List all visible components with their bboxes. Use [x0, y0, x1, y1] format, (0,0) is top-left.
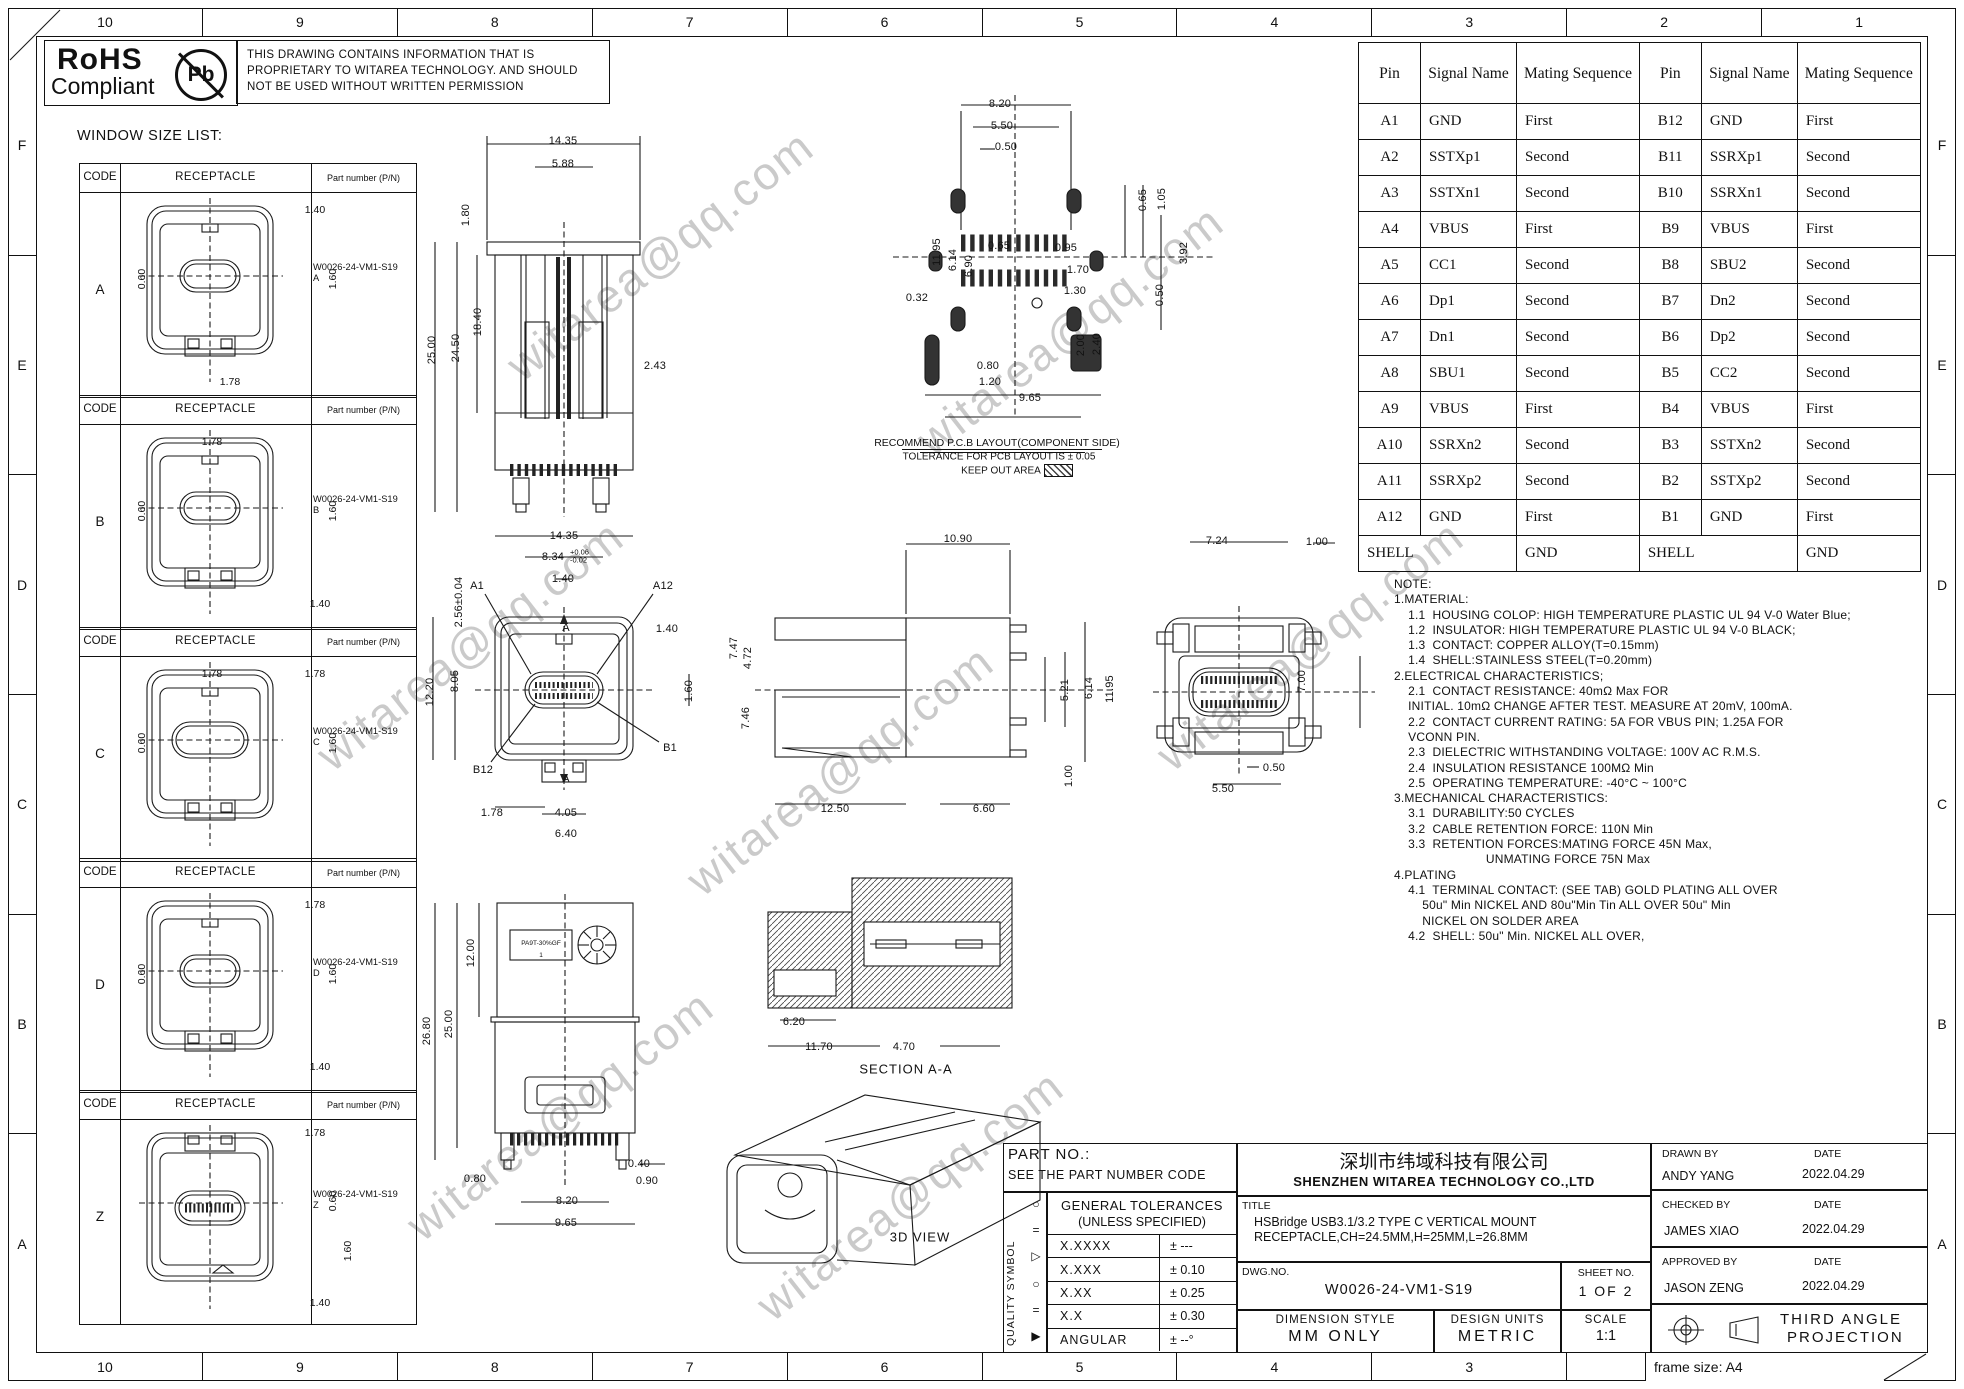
dim-label: 1.40 [310, 1297, 330, 1309]
drawing-title-line1: HSBridge USB3.1/3.2 TYPE C VERTICAL MOUN… [1238, 1212, 1650, 1229]
quality-symbol-icon: ▷ [1026, 1249, 1046, 1263]
pin-row: B11 SSRXp1 Second [1639, 140, 1920, 176]
shell-value: GND [1797, 536, 1920, 572]
approved-date-value: 2022.04.29 [1802, 1279, 1865, 1293]
pin-callout-a1: A1 [470, 580, 484, 592]
mating-sequence: Second [1517, 140, 1640, 176]
projection-box: THIRD ANGLE PROJECTION [1651, 1304, 1928, 1353]
signal-name: GND [1421, 104, 1517, 140]
pin-id: B10 [1639, 176, 1701, 212]
mating-sequence: Second [1797, 140, 1920, 176]
grid-row-label: A [8, 1134, 36, 1353]
pin-row: A8 SBU1 Second [1359, 356, 1640, 392]
grid-col-label: 8 [398, 1353, 593, 1381]
design-units-value: METRIC [1435, 1326, 1560, 1346]
dim-label: 6.90 [963, 255, 975, 277]
dim-label: 6.14 [1083, 677, 1095, 699]
dim-label: 2.00 [1075, 334, 1087, 356]
col-header-signal: Signal Name [1701, 43, 1797, 104]
grid-col-label: 9 [203, 8, 398, 36]
dim-label: 1.00 [1306, 536, 1328, 548]
approved-by-value: JASON ZENG [1664, 1281, 1744, 1295]
dim-label: 24.50 [450, 334, 462, 363]
pin-assignment-table: Pin Signal Name Mating Sequence A1 GND F… [1358, 42, 1921, 572]
grid-col-label: 9 [203, 1353, 398, 1381]
dim-label: 0.60 [327, 1191, 339, 1211]
code-letter: B [80, 514, 120, 529]
grid-col-label: 1 [1762, 8, 1956, 36]
note-line: 4.2 SHELL: 50u" Min. NICKEL ALL OVER, [1394, 929, 1934, 944]
company-name-cn: 深圳市纬域科技有限公司 [1238, 1144, 1650, 1174]
pin-id: B12 [1639, 104, 1701, 140]
mating-sequence: First [1517, 104, 1640, 140]
approved-by-box: APPROVED BY DATE JASON ZENG 2022.04.29 [1651, 1247, 1928, 1304]
title-box: TITLE HSBridge USB3.1/3.2 TYPE C VERTICA… [1237, 1196, 1651, 1262]
dim-label: 8.34 [542, 551, 564, 563]
tolerance-row: ANGULAR ± --° [1048, 1328, 1236, 1351]
mating-sequence: Second [1797, 464, 1920, 500]
dim-label: 0.65 [988, 240, 1010, 252]
dim-label: 3.92 [1178, 242, 1190, 264]
signal-name: VBUS [1421, 392, 1517, 428]
note-line: UNMATING FORCE 75N Max [1394, 852, 1934, 867]
engineering-drawing-sheet: witarea@qq.com witarea@qq.com witarea@qq… [0, 0, 1964, 1389]
grid-row-label: B [1928, 915, 1956, 1135]
dim-label: 0.95 [1055, 242, 1077, 254]
pin-table-b-side: Pin Signal Name Mating Sequence B12 GND … [1639, 42, 1921, 572]
signal-name: SSTXp2 [1701, 464, 1797, 500]
grid-col-label: 7 [593, 8, 788, 36]
dim-label: 6.40 [555, 828, 577, 840]
receptacle-drawing [127, 887, 303, 1083]
note-line: 1.4 SHELL:STAINLESS STEEL(T=0.20mm) [1394, 653, 1934, 668]
design-units-box: DESIGN UNITS METRIC [1434, 1310, 1561, 1353]
tolerance-precision: X.XXXX [1048, 1239, 1159, 1253]
rohs-compliant-label: Compliant [51, 73, 155, 100]
tolerance-value: ± --- [1159, 1235, 1236, 1257]
signal-name: Dn1 [1421, 320, 1517, 356]
note-line: 3.1 DURABILITY:50 CYCLES [1394, 806, 1934, 821]
pin-row: A12 GND First [1359, 500, 1640, 536]
pin-id: A4 [1359, 212, 1421, 248]
mating-sequence: Second [1517, 176, 1640, 212]
dim-label: 14.35 [550, 530, 579, 542]
pin-row: A1 GND First [1359, 104, 1640, 140]
code-letter: D [80, 977, 120, 992]
front-view-drawing [425, 122, 685, 532]
code-letter: C [80, 746, 120, 761]
note-line: 4.PLATING [1394, 868, 1934, 883]
note-line: 2.3 DIELECTRIC WITHSTANDING VOLTAGE: 100… [1394, 745, 1934, 760]
dim-label: 1.78 [305, 899, 325, 911]
signal-name: GND [1701, 104, 1797, 140]
shell-value: GND [1517, 536, 1640, 572]
note-line: 3.2 CABLE RETENTION FORCE: 110N Min [1394, 822, 1934, 837]
pin-id: A9 [1359, 392, 1421, 428]
pin-id: A7 [1359, 320, 1421, 356]
proprietary-line: NOT BE USED WITHOUT WRITTEN PERMISSION [247, 79, 609, 95]
dimension-style-label: DIMENSION STYLE [1238, 1311, 1433, 1326]
mating-sequence: Second [1797, 176, 1920, 212]
note-line: 1.2 INSULATOR: HIGH TEMPERATURE PLASTIC … [1394, 623, 1934, 638]
pin-row: A5 CC1 Second [1359, 248, 1640, 284]
dim-label: 4.05 [555, 807, 577, 819]
code-letter: Z [80, 1209, 120, 1224]
grid-row-label: F [8, 36, 36, 256]
dim-label: 25.00 [426, 336, 438, 365]
dim-label: 1.30 [1064, 285, 1086, 297]
dim-label: 0.80 [464, 1173, 486, 1185]
dim-label: 1.78 [202, 668, 222, 680]
dim-label: 12.20 [424, 678, 436, 707]
dim-label: 7.46 [740, 707, 752, 729]
dim-label: 0.80 [977, 360, 999, 372]
pin-id: A6 [1359, 284, 1421, 320]
pin-id: B4 [1639, 392, 1701, 428]
dim-label: 1.78 [220, 376, 240, 388]
cavity-number: 1 [539, 952, 543, 960]
pin-row: A7 Dn1 Second [1359, 320, 1640, 356]
dim-label: 2.43 [644, 360, 666, 372]
signal-name: CC2 [1701, 356, 1797, 392]
mating-sequence: Second [1517, 464, 1640, 500]
scale-value: 1:1 [1562, 1326, 1650, 1344]
signal-name: SSTXn2 [1701, 428, 1797, 464]
3d-view-label: 3D VIEW [890, 1230, 950, 1245]
dwg-no-box: DWG.NO. W0026-24-VM1-S19 [1237, 1262, 1561, 1310]
dim-label: 1.60 [327, 269, 339, 289]
grid-col-label: 6 [788, 1353, 983, 1381]
dim-label: 1.78 [202, 436, 222, 448]
signal-name: VBUS [1701, 392, 1797, 428]
note-line: 50u" Min NICKEL AND 80u"Min Tin ALL OVER… [1394, 898, 1934, 913]
dim-label: 1.40 [656, 623, 678, 635]
pin-id: A2 [1359, 140, 1421, 176]
note-line: 2.2 CONTACT CURRENT RATING: 5A FOR VBUS … [1394, 715, 1934, 730]
signal-name: SBU2 [1701, 248, 1797, 284]
company-name-en: SHENZHEN WITAREA TECHNOLOGY CO.,LTD [1238, 1174, 1650, 1189]
checked-date-value: 2022.04.29 [1802, 1222, 1865, 1236]
pin-id: B11 [1639, 140, 1701, 176]
pin-row: A10 SSRXn2 Second [1359, 428, 1640, 464]
signal-name: Dn2 [1701, 284, 1797, 320]
col-header-signal: Signal Name [1421, 43, 1517, 104]
receptacle-drawing [127, 656, 303, 852]
signal-name: VBUS [1701, 212, 1797, 248]
tolerance-precision: X.XX [1048, 1286, 1159, 1300]
tolerance-value: ± --° [1159, 1329, 1236, 1351]
projection-label-line1: THIRD ANGLE [1780, 1311, 1902, 1328]
dim-label: 5.21 [1059, 679, 1071, 701]
dim-label: 7.00 [1296, 670, 1308, 692]
pin-id: B8 [1639, 248, 1701, 284]
dim-label: 1.05 [1156, 188, 1168, 210]
note-line: NOTE: [1394, 577, 1934, 592]
col-header-pin: Pin [1639, 43, 1701, 104]
part-no-label: PART NO.: [1004, 1144, 1236, 1163]
pin-row: A4 VBUS First [1359, 212, 1640, 248]
dim-label: 1.20 [979, 376, 1001, 388]
window-table-header: CODE RECEPTACLE Part number (P/N) [80, 396, 416, 425]
grid-col-label: 5 [983, 8, 1178, 36]
note-line: INITIAL. 10mΩ CHANGE AFTER TEST. MEASURE… [1394, 699, 1934, 714]
grid-col-label: 8 [398, 8, 593, 36]
pin-row: B7 Dn2 Second [1639, 284, 1920, 320]
pin-row: A6 Dp1 Second [1359, 284, 1640, 320]
tolerance-row: X.X ± 0.30 [1048, 1304, 1236, 1327]
checked-by-box: CHECKED BY DATE JAMES XIAO 2022.04.29 [1651, 1190, 1928, 1247]
mating-sequence: First [1797, 500, 1920, 536]
dim-label: 12.00 [465, 939, 477, 968]
dim-label: 4.72 [742, 647, 754, 669]
tolerance-row: X.XXX ± 0.10 [1048, 1257, 1236, 1280]
dim-label: 1.00 [1063, 765, 1075, 787]
pin-id: A3 [1359, 176, 1421, 212]
part-no-box: PART NO.: SEE THE PART NUMBER CODE [1003, 1143, 1237, 1192]
grid-col-label: 2 [1567, 8, 1762, 36]
title-block: PART NO.: SEE THE PART NUMBER CODE QUALI… [1003, 1143, 1928, 1353]
dim-label: 5.88 [552, 158, 574, 170]
keep-out-area-caption: KEEP OUT AREA [961, 466, 1041, 477]
dim-label: 12.50 [821, 803, 850, 815]
pin-row: B4 VBUS First [1639, 392, 1920, 428]
dim-label: 6.14 [947, 249, 959, 271]
tolerances-box: GENERAL TOLERANCES (UNLESS SPECIFIED) X.… [1047, 1192, 1237, 1353]
grid-row-label: B [8, 915, 36, 1135]
pin-id: B7 [1639, 284, 1701, 320]
grid-band-top: 10987654321 [8, 8, 1956, 36]
rohs-compliant-box: RoHS Compliant Pb [44, 40, 238, 106]
signal-name: SSTXp1 [1421, 140, 1517, 176]
dim-label: 0.40 [628, 1158, 650, 1170]
dim-label: 0.50 [995, 141, 1017, 153]
grid-col-label: 3 [1372, 8, 1567, 36]
pin-row: B5 CC2 Second [1639, 356, 1920, 392]
shell-label: SHELL [1359, 536, 1517, 572]
plan-view-drawing [425, 522, 755, 852]
dim-label: 18.40 [472, 308, 484, 337]
dim-label: 0.65 [1137, 189, 1149, 211]
drawing-title-line2: RECEPTACLE,CH=24.5MM,H=25MM,L=26.8MM [1238, 1229, 1650, 1244]
drawn-by-value: ANDY YANG [1662, 1169, 1734, 1183]
mating-sequence: Second [1797, 428, 1920, 464]
quality-symbol-icon: = [1026, 1223, 1046, 1237]
sheet-no-box: SHEET NO. 1 OF 2 [1561, 1262, 1651, 1310]
scale-box: SCALE 1:1 [1561, 1310, 1651, 1353]
dim-label: 1.78 [305, 1127, 325, 1139]
receptacle-drawing [127, 424, 303, 620]
mating-sequence: Second [1517, 428, 1640, 464]
dwg-no-value: W0026-24-VM1-S19 [1238, 1278, 1560, 1298]
note-line: 4.1 TERMINAL CONTACT: (SEE TAB) GOLD PLA… [1394, 883, 1934, 898]
mating-sequence: Second [1517, 248, 1640, 284]
grid-col-label: 6 [788, 8, 983, 36]
dim-label: 1.78 [481, 807, 503, 819]
signal-name: VBUS [1421, 212, 1517, 248]
mating-sequence: Second [1517, 356, 1640, 392]
dim-label: 5.50 [1212, 783, 1234, 795]
pin-row: B10 SSRXn1 Second [1639, 176, 1920, 212]
pcb-layout-drawing [885, 85, 1220, 485]
note-line: 3.MECHANICAL CHARACTERISTICS: [1394, 791, 1934, 806]
grid-row-label: A [1928, 1134, 1956, 1353]
receptacle-drawing [127, 1119, 303, 1315]
signal-name: SSTXn1 [1421, 176, 1517, 212]
dim-label: 0.60 [136, 733, 148, 753]
window-table-header: CODE RECEPTACLE Part number (P/N) [80, 859, 416, 888]
sheet-no-label: SHEET NO. [1562, 1263, 1650, 1279]
pin-row: A11 SSRXp2 Second [1359, 464, 1640, 500]
window-size-row-a: CODE RECEPTACLE Part number (P/N) A W002… [79, 163, 417, 398]
section-mark: A [562, 622, 570, 634]
signal-name: SSRXn2 [1421, 428, 1517, 464]
dim-label: 0.50 [1154, 284, 1166, 306]
grid-col-label: 7 [593, 1353, 788, 1381]
pin-callout-b1: B1 [663, 742, 677, 754]
tolerance-stack: +0.06-0.02 [570, 549, 589, 564]
pin-row: A9 VBUS First [1359, 392, 1640, 428]
window-size-row-c: CODE RECEPTACLE Part number (P/N) C W002… [79, 627, 417, 862]
grid-band-left: FEDCBA [8, 36, 36, 1353]
grid-row-label: C [8, 695, 36, 915]
signal-name: Dp2 [1701, 320, 1797, 356]
dim-label: 0.60 [136, 269, 148, 289]
date-label: DATE [1814, 1256, 1841, 1268]
pin-id: B1 [1639, 500, 1701, 536]
quality-symbol-icon: ▶ [1026, 1329, 1046, 1343]
dim-label: 9.65 [1019, 392, 1041, 404]
pin-table-a-side: Pin Signal Name Mating Sequence A1 GND F… [1358, 42, 1640, 572]
pcb-tolerance-caption: TOLERANCE FOR PCB LAYOUT IS ± 0.05 [903, 452, 1096, 463]
checked-by-label: CHECKED BY [1662, 1199, 1730, 1211]
dim-label: 7.24 [1206, 535, 1228, 547]
grid-col-label: 4 [1177, 8, 1372, 36]
mating-sequence: First [1517, 212, 1640, 248]
pin-id: A8 [1359, 356, 1421, 392]
dim-label: 14.35 [549, 135, 578, 147]
lead-free-pb-icon: Pb [175, 49, 227, 101]
mating-sequence: First [1517, 500, 1640, 536]
note-line: 1.3 CONTACT: COPPER ALLOY(T=0.15mm) [1394, 638, 1934, 653]
dim-label: 2.40 [1091, 333, 1103, 355]
window-size-row-d: CODE RECEPTACLE Part number (P/N) D W002… [79, 858, 417, 1093]
proprietary-notice: THIS DRAWING CONTAINS INFORMATION THAT I… [236, 40, 610, 104]
dim-label: 1.60 [327, 733, 339, 753]
pin-id: A11 [1359, 464, 1421, 500]
dim-label: 26.80 [421, 1017, 433, 1046]
scale-label: SCALE [1562, 1311, 1650, 1326]
signal-name: GND [1421, 500, 1517, 536]
grid-row-label: E [8, 256, 36, 476]
dwg-no-label: DWG.NO. [1238, 1263, 1560, 1278]
dim-label: 0.50 [1263, 762, 1285, 774]
pin-id: B3 [1639, 428, 1701, 464]
grid-col-label: 3 [1372, 1353, 1567, 1381]
pin-row: B6 Dp2 Second [1639, 320, 1920, 356]
pin-id: A5 [1359, 248, 1421, 284]
proprietary-line: THIS DRAWING CONTAINS INFORMATION THAT I… [247, 47, 609, 63]
window-size-list-title: WINDOW SIZE LIST: [77, 128, 222, 144]
approved-by-label: APPROVED BY [1662, 1256, 1737, 1268]
dim-label: 1.70 [1067, 264, 1089, 276]
keep-out-area-swatch [1044, 464, 1073, 477]
dim-label: 0.32 [906, 292, 928, 304]
drawn-date-value: 2022.04.29 [1802, 1167, 1865, 1181]
tolerance-value: ± 0.25 [1159, 1282, 1236, 1304]
dim-label: 10.90 [944, 533, 973, 545]
proprietary-line: PROPRIETARY TO WITAREA TECHNOLOGY. AND S… [247, 63, 609, 79]
tolerances-subheader: (UNLESS SPECIFIED) [1048, 1213, 1236, 1234]
pin-callout-a12: A12 [653, 580, 673, 592]
dim-label: 6.20 [783, 1016, 805, 1028]
pin-row: B3 SSTXn2 Second [1639, 428, 1920, 464]
dim-label: 2.56±0.04 [453, 577, 465, 628]
shell-row: SHELL GND [1639, 536, 1920, 572]
note-line: 2.ELECTRICAL CHARACTERISTICS; [1394, 669, 1934, 684]
dim-label: 1.40 [310, 598, 330, 610]
dimension-style-value: MM ONLY [1238, 1326, 1433, 1346]
mating-sequence: Second [1797, 284, 1920, 320]
window-table-header: CODE RECEPTACLE Part number (P/N) [80, 164, 416, 193]
quality-symbol-icon: ○ [1026, 1277, 1046, 1291]
dim-label: 1.40 [552, 573, 574, 585]
code-letter: A [80, 282, 120, 297]
shell-label: SHELL [1639, 536, 1797, 572]
pin-id: B2 [1639, 464, 1701, 500]
checked-by-value: JAMES XIAO [1664, 1224, 1739, 1238]
grid-col-label: 5 [983, 1353, 1178, 1381]
pin-id: A12 [1359, 500, 1421, 536]
dim-label: 0.60 [136, 501, 148, 521]
dim-label: 1.80 [460, 204, 472, 226]
tolerance-row: X.XX ± 0.25 [1048, 1281, 1236, 1304]
tolerance-value: ± 0.30 [1159, 1305, 1236, 1327]
pin-id: B6 [1639, 320, 1701, 356]
col-header-pin: Pin [1359, 43, 1421, 104]
signal-name: GND [1701, 500, 1797, 536]
dim-label: 1.60 [683, 680, 695, 702]
drawn-by-box: DRAWN BY DATE ANDY YANG 2022.04.29 [1651, 1143, 1928, 1190]
signal-name: SSRXp1 [1701, 140, 1797, 176]
mating-sequence: First [1517, 392, 1640, 428]
dimension-style-box: DIMENSION STYLE MM ONLY [1237, 1310, 1434, 1353]
mating-sequence: First [1797, 104, 1920, 140]
shell-row: SHELL GND [1359, 536, 1640, 572]
grid-row-label: F [1928, 36, 1956, 256]
pcb-layout-caption: RECOMMEND P.C.B LAYOUT(COMPONENT SIDE) [874, 437, 1120, 449]
signal-name: SBU1 [1421, 356, 1517, 392]
drawn-by-label: DRAWN BY [1662, 1148, 1718, 1160]
dim-label: 0.90 [636, 1175, 658, 1187]
mating-sequence: Second [1797, 248, 1920, 284]
note-line: 1.MATERIAL: [1394, 592, 1934, 607]
pin-callout-b12: B12 [473, 764, 493, 776]
dim-label: 6.60 [973, 803, 995, 815]
dim-label: 1.60 [327, 964, 339, 984]
quality-symbol-icon: ○ [1026, 1197, 1046, 1211]
date-label: DATE [1814, 1148, 1841, 1160]
tolerance-value: ± 0.10 [1159, 1258, 1236, 1280]
note-line: 1.1 HOUSING COLOP: HIGH TEMPERATURE PLAS… [1394, 608, 1934, 623]
tolerance-row: X.XXXX ± --- [1048, 1234, 1236, 1257]
note-line: NICKEL ON SOLDER AREA [1394, 914, 1934, 929]
dim-label: 25.00 [443, 1010, 455, 1039]
rule [902, 449, 1102, 450]
dim-label: 1.60 [342, 1241, 354, 1261]
date-label: DATE [1814, 1199, 1841, 1211]
company-box: 深圳市纬域科技有限公司 SHENZHEN WITAREA TECHNOLOGY … [1237, 1143, 1651, 1196]
note-line: VCONN PIN. [1394, 730, 1934, 745]
